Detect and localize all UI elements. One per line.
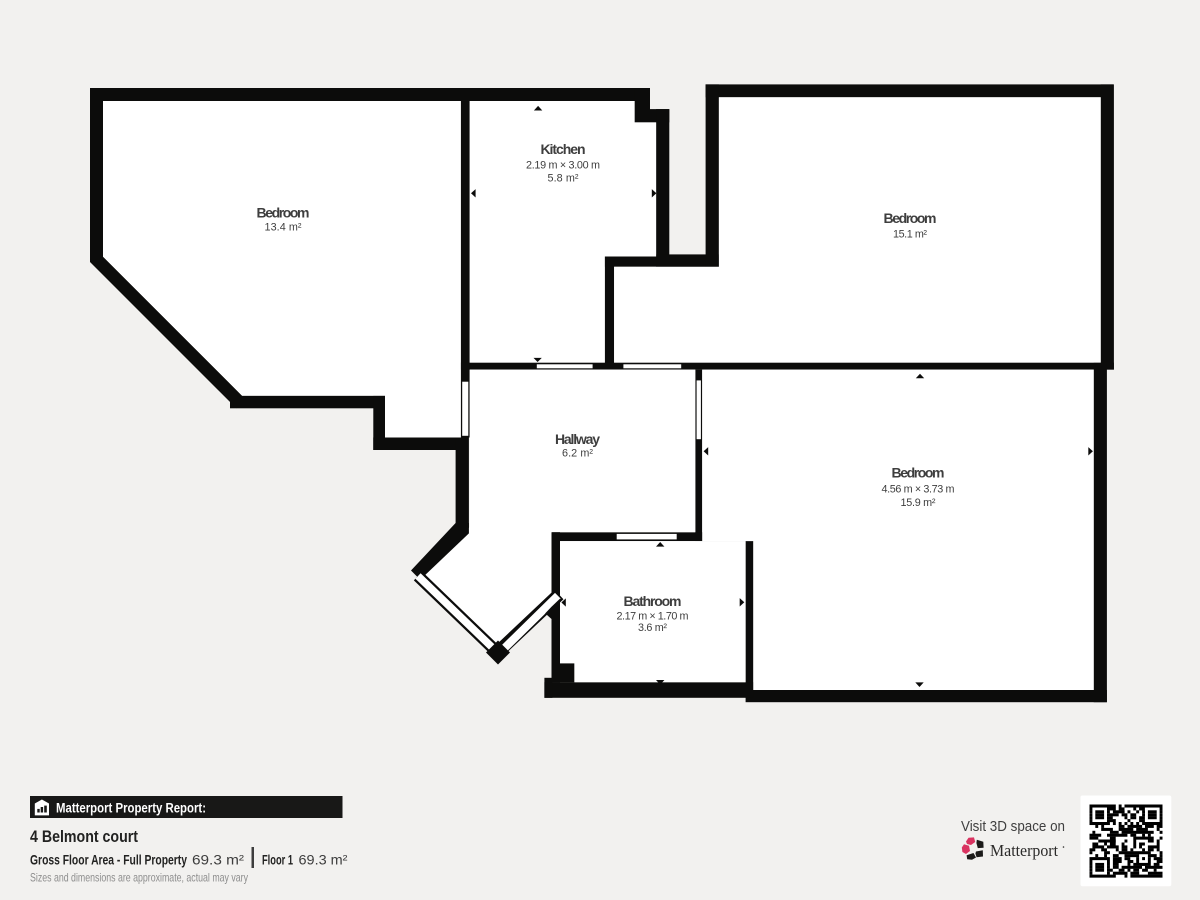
svg-text:13.4 m²: 13.4 m²: [265, 222, 302, 234]
svg-text:69.3 m²: 69.3 m²: [299, 853, 348, 868]
svg-text:Matterport: Matterport: [990, 841, 1058, 860]
svg-text:5.8 m²: 5.8 m²: [548, 172, 579, 184]
svg-text:3.6 m²: 3.6 m²: [638, 622, 667, 634]
svg-text:15.1 m²: 15.1 m²: [893, 229, 927, 241]
svg-text:Bedroom: Bedroom: [892, 465, 945, 481]
svg-text:Bedroom: Bedroom: [884, 210, 937, 226]
svg-text:Visit 3D space on: Visit 3D space on: [961, 818, 1065, 835]
svg-text:Sizes and dimensions are appro: Sizes and dimensions are approximate, ac…: [30, 871, 248, 885]
svg-text:Gross Floor Area - Full Proper: Gross Floor Area - Full Property: [30, 853, 187, 868]
svg-text:6.2 m²: 6.2 m²: [562, 448, 593, 460]
svg-text:2.19 m × 3.00 m: 2.19 m × 3.00 m: [526, 159, 600, 171]
svg-text:Hallway: Hallway: [555, 431, 600, 447]
svg-text:2.17 m × 1.70 m: 2.17 m × 1.70 m: [617, 610, 689, 622]
svg-text:Kitchen: Kitchen: [541, 141, 586, 157]
svg-text:4 Belmont court: 4 Belmont court: [30, 827, 138, 846]
svg-text:Matterport Property Report:: Matterport Property Report:: [56, 801, 206, 816]
svg-text:4.56 m × 3.73 m: 4.56 m × 3.73 m: [882, 484, 955, 496]
svg-text:15.9 m²: 15.9 m²: [901, 497, 936, 509]
svg-text:Floor 1: Floor 1: [262, 853, 293, 868]
svg-text:Bedroom: Bedroom: [257, 205, 310, 221]
svg-text:Bathroom: Bathroom: [624, 593, 682, 609]
svg-text:69.3 m²: 69.3 m²: [192, 853, 244, 868]
